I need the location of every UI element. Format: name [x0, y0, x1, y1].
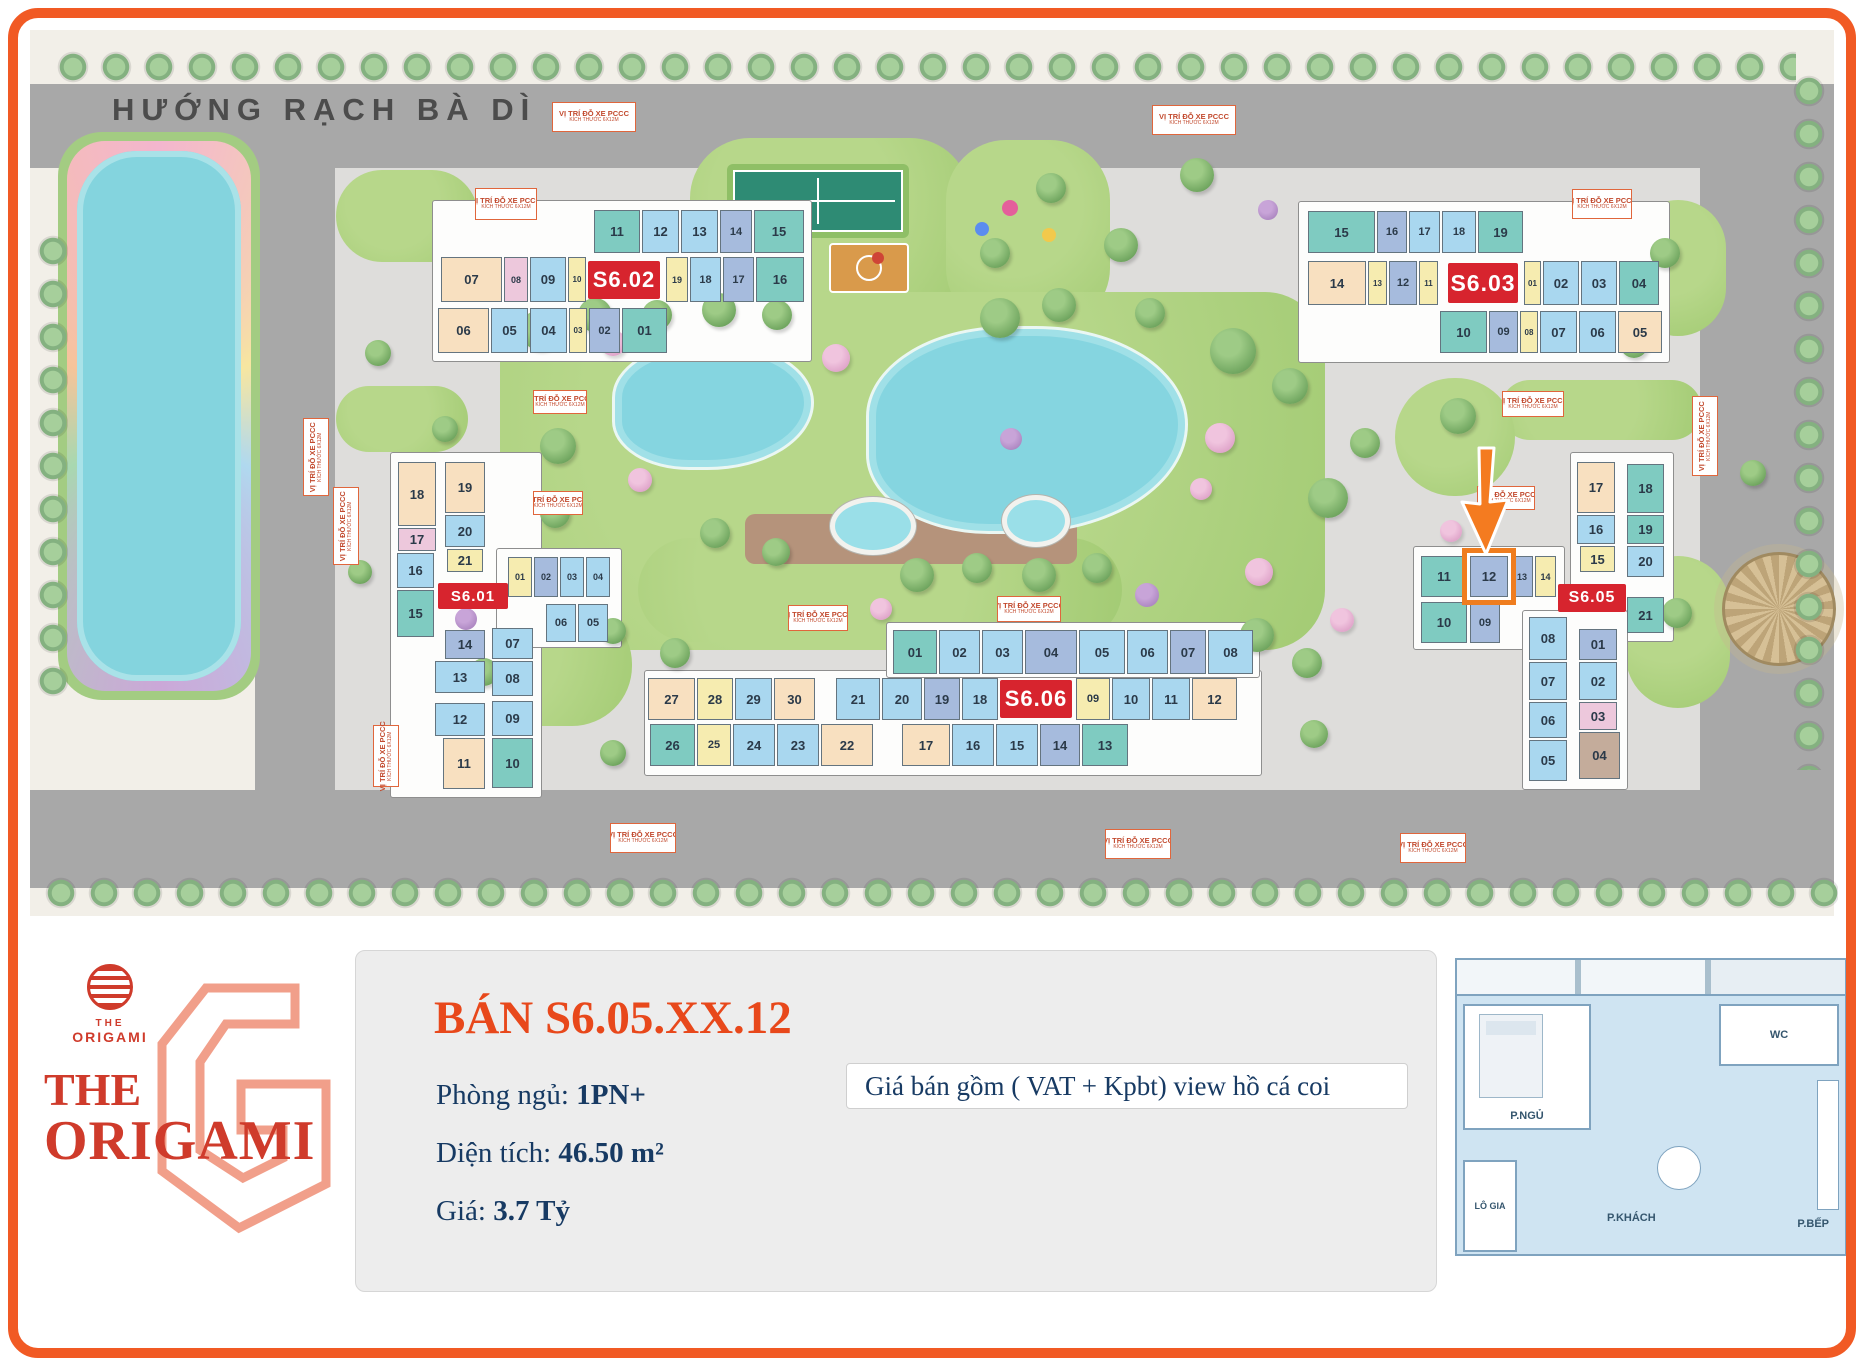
bed-icon: [1479, 1014, 1543, 1098]
unit-S6.06-08[interactable]: 08: [1208, 630, 1253, 674]
unit-S6.02-12[interactable]: 12: [642, 210, 679, 253]
field-bedrooms-label: Phòng ngủ:: [436, 1079, 576, 1111]
tree-icon: [1180, 158, 1214, 192]
pccc-marker: VỊ TRÍ ĐỖ XE PCCCKÍCH THƯỚC 6X12M: [1105, 829, 1171, 859]
unit-S6.06-03[interactable]: 03: [982, 630, 1023, 674]
tree-icon: [1022, 558, 1056, 592]
pccc-marker: VỊ TRÍ ĐỖ XE PCCCKÍCH THƯỚC 6X12M: [533, 390, 587, 414]
tree-icon: [1740, 460, 1766, 486]
unit-S6.02-17[interactable]: 17: [723, 257, 754, 302]
logo-big-origami: ORIGAMI: [44, 1113, 324, 1169]
unit-S6.03-16[interactable]: 16: [1377, 211, 1407, 253]
unit-S6.06-06[interactable]: 06: [1127, 630, 1168, 674]
unit-S6.02-13[interactable]: 13: [681, 210, 718, 253]
pink-tree-icon: [1245, 558, 1273, 586]
unit-S6.03-11[interactable]: 11: [1419, 261, 1438, 305]
tree-icon: [540, 428, 576, 464]
unit-S6.06-01[interactable]: 01: [893, 630, 937, 674]
unit-S6.01-01[interactable]: 01: [508, 557, 532, 597]
tree-row: [52, 48, 1796, 86]
unit-S6.01-09[interactable]: 09: [492, 701, 533, 736]
unit-S6.02-02[interactable]: 02: [589, 308, 620, 353]
unit-S6.05-03[interactable]: 03: [1579, 702, 1617, 730]
tree-icon: [1662, 598, 1692, 628]
logo-big-the: THE: [44, 1067, 324, 1113]
listing-fields: Phòng ngủ: 1PN+ Diện tích: 46.50 m² Giá:…: [436, 1079, 664, 1253]
unit-S6.03-08[interactable]: 08: [1520, 311, 1538, 353]
unit-S6.06-10[interactable]: 10: [1112, 678, 1150, 720]
kitchen-label: P.BẾP: [1797, 1218, 1829, 1230]
tree-icon: [900, 558, 934, 592]
pccc-marker: VỊ TRÍ ĐỖ XE PCCCKÍCH THƯỚC 6X12M: [552, 102, 636, 132]
field-bedrooms: Phòng ngủ: 1PN+: [436, 1079, 664, 1112]
unit-S6.03-06[interactable]: 06: [1579, 311, 1616, 353]
lake-water: [77, 151, 241, 681]
unit-S6.02-09[interactable]: 09: [530, 257, 566, 302]
unit-S6.02-18[interactable]: 18: [690, 257, 721, 302]
unit-S6.05-13[interactable]: 13: [1511, 556, 1533, 597]
unit-S6.03-12[interactable]: 12: [1389, 261, 1417, 305]
lake-park: [58, 132, 260, 700]
listing-note: Giá bán gồm ( VAT + Kpbt) view hồ cá coi: [846, 1063, 1408, 1109]
listing-card: BÁN S6.05.XX.12 Phòng ngủ: 1PN+ Diện tíc…: [355, 950, 1437, 1292]
unit-S6.06-04[interactable]: 04: [1025, 630, 1077, 674]
dining-table-icon: [1657, 1146, 1701, 1190]
unit-S6.05-10[interactable]: 10: [1421, 602, 1467, 643]
purple-tree-icon: [1000, 428, 1022, 450]
unit-S6.06-09[interactable]: 09: [1076, 678, 1110, 720]
pink-tree-icon: [628, 468, 652, 492]
building-label-S6.05: S6.05: [1558, 584, 1626, 612]
tree-icon: [600, 740, 626, 766]
tree-icon: [980, 298, 1020, 338]
unit-S6.06-25[interactable]: 25: [697, 724, 731, 766]
unit-S6.05-09[interactable]: 09: [1470, 602, 1500, 643]
unit-S6.01-13[interactable]: 13: [435, 661, 485, 693]
unit-S6.05-17[interactable]: 17: [1577, 462, 1615, 513]
unit-S6.03-05[interactable]: 05: [1618, 311, 1662, 353]
unit-S6.03-09[interactable]: 09: [1489, 311, 1518, 353]
unit-S6.05-04[interactable]: 04: [1579, 732, 1620, 779]
unit-S6.05-08[interactable]: 08: [1529, 617, 1567, 660]
floorplan-hall: [1457, 960, 1845, 996]
floorplan-wc: WC: [1719, 1004, 1839, 1066]
site-plan-map: HƯỚNG RẠCH BÀ DÌ 18171615192021010203040…: [0, 0, 1864, 918]
unit-S6.03-03[interactable]: 03: [1581, 261, 1617, 305]
unit-S6.02-08[interactable]: 08: [504, 257, 528, 302]
unit-S6.06-14[interactable]: 14: [1040, 724, 1080, 766]
unit-S6.06-12[interactable]: 12: [1192, 678, 1237, 720]
field-area-label: Diện tích:: [436, 1137, 558, 1169]
living-label: P.KHÁCH: [1607, 1212, 1656, 1224]
unit-S6.02-06[interactable]: 06: [438, 308, 489, 353]
tree-icon: [762, 300, 792, 330]
unit-S6.06-15[interactable]: 15: [996, 724, 1038, 766]
tree-icon: [1135, 298, 1165, 328]
pccc-marker: VỊ TRÍ ĐỖ XE PCCCKÍCH THƯỚC 6X12M: [1152, 105, 1236, 135]
unit-S6.03-04[interactable]: 04: [1619, 261, 1659, 305]
pink-tree-icon: [1330, 608, 1354, 632]
balcony-label: LÔ GIA: [1463, 1160, 1517, 1252]
unit-S6.03-07[interactable]: 07: [1540, 311, 1577, 353]
tree-column: [36, 230, 68, 700]
playground-equipment-icon: [975, 222, 989, 236]
tree-icon: [1300, 720, 1328, 748]
unit-S6.03-19[interactable]: 19: [1478, 211, 1523, 253]
pccc-marker: VỊ TRÍ ĐỖ XE PCCCKÍCH THƯỚC 6X12M: [997, 596, 1061, 622]
unit-S6.06-19[interactable]: 19: [924, 678, 960, 720]
floorplan-thumbnail[interactable]: P.NGỦ WC LÔ GIA P.KHÁCH P.BẾP: [1455, 958, 1847, 1256]
unit-S6.02-15[interactable]: 15: [754, 210, 804, 253]
unit-S6.01-20[interactable]: 20: [445, 515, 485, 547]
playground-equipment-icon: [1042, 228, 1056, 242]
basketball-court: [829, 243, 909, 293]
tree-icon: [1210, 328, 1256, 374]
unit-S6.05-16[interactable]: 16: [1577, 515, 1615, 544]
unit-S6.06-22[interactable]: 22: [821, 724, 873, 766]
pccc-marker: VỊ TRÍ ĐỖ XE PCCCKÍCH THƯỚC 6X12M: [333, 487, 359, 565]
pccc-marker: VỊ TRÍ ĐỖ XE PCCCKÍCH THƯỚC 6X12M: [788, 605, 848, 631]
playground-equipment-icon: [1002, 200, 1018, 216]
purple-tree-icon: [1135, 583, 1159, 607]
unit-S6.01-21[interactable]: 21: [447, 549, 483, 572]
tree-icon: [1292, 648, 1322, 678]
pccc-marker: VỊ TRÍ ĐỖ XE PCCCKÍCH THƯỚC 6X12M: [1502, 391, 1564, 417]
unit-S6.01-06[interactable]: 06: [546, 604, 576, 642]
purple-tree-icon: [455, 608, 477, 630]
tree-icon: [762, 538, 790, 566]
building-label-S6.02: S6.02: [588, 261, 660, 299]
pccc-marker: VỊ TRÍ ĐỖ XE PCCCKÍCH THƯỚC 6X12M: [533, 491, 583, 515]
unit-S6.05-01[interactable]: 01: [1579, 629, 1617, 660]
unit-S6.05-14[interactable]: 14: [1535, 556, 1556, 597]
unit-S6.05-06[interactable]: 06: [1529, 702, 1567, 738]
pccc-marker: VỊ TRÍ ĐỖ XE PCCCKÍCH THƯỚC 6X12M: [1400, 833, 1466, 863]
unit-S6.03-18[interactable]: 18: [1442, 211, 1476, 253]
unit-S6.05-21[interactable]: 21: [1627, 597, 1664, 633]
unit-S6.06-16[interactable]: 16: [952, 724, 994, 766]
unit-S6.02-14[interactable]: 14: [720, 210, 752, 253]
unit-S6.05-12[interactable]: 12: [1470, 556, 1508, 597]
purple-tree-icon: [1258, 200, 1278, 220]
tree-icon: [700, 518, 730, 548]
tree-icon: [1350, 428, 1380, 458]
pccc-marker: VỊ TRÍ ĐỖ XE PCCCKÍCH THƯỚC 6X12M: [610, 823, 676, 853]
unit-S6.01-12[interactable]: 12: [435, 703, 485, 736]
round-pool: [1002, 495, 1070, 547]
tree-row: [40, 874, 1838, 914]
field-area: Diện tích: 46.50 m²: [436, 1137, 664, 1170]
unit-S6.05-18[interactable]: 18: [1627, 464, 1664, 513]
unit-S6.06-13[interactable]: 13: [1082, 724, 1128, 766]
unit-S6.01-05[interactable]: 05: [578, 604, 608, 642]
tree-icon: [1104, 228, 1138, 262]
road-direction-label: HƯỚNG RẠCH BÀ DÌ: [112, 92, 536, 128]
origami-logo-icon: [87, 964, 133, 1010]
unit-S6.01-04[interactable]: 04: [586, 557, 610, 597]
unit-S6.01-02[interactable]: 02: [534, 557, 558, 597]
tree-icon: [365, 340, 391, 366]
unit-S6.06-20[interactable]: 20: [882, 678, 922, 720]
tree-column: [1792, 70, 1828, 770]
unit-S6.02-03[interactable]: 03: [569, 308, 587, 353]
tree-icon: [1440, 398, 1476, 434]
unit-S6.01-07[interactable]: 07: [492, 628, 533, 659]
unit-S6.06-23[interactable]: 23: [777, 724, 819, 766]
wc-label: WC: [1770, 1029, 1788, 1041]
unit-S6.05-05[interactable]: 05: [1529, 740, 1567, 781]
unit-S6.05-07[interactable]: 07: [1529, 662, 1567, 700]
pink-tree-icon: [870, 598, 892, 620]
pccc-marker: VỊ TRÍ ĐỖ XE PCCCKÍCH THƯỚC 6X12M: [373, 725, 399, 787]
unit-S6.01-18[interactable]: 18: [398, 462, 436, 526]
unit-S6.06-27[interactable]: 27: [648, 678, 695, 720]
pink-tree-icon: [1205, 423, 1235, 453]
unit-S6.01-15[interactable]: 15: [397, 590, 434, 637]
unit-S6.06-07[interactable]: 07: [1170, 630, 1206, 674]
kitchen-counter-icon: [1817, 1080, 1839, 1210]
tree-icon: [432, 416, 458, 442]
pccc-marker: VỊ TRÍ ĐỖ XE PCCCKÍCH THƯỚC 6X12M: [475, 188, 537, 220]
tree-icon: [1036, 173, 1066, 203]
unit-S6.03-14[interactable]: 14: [1308, 261, 1366, 305]
unit-S6.02-11[interactable]: 11: [594, 210, 640, 253]
unit-S6.01-14[interactable]: 14: [445, 630, 485, 659]
unit-S6.03-15[interactable]: 15: [1308, 211, 1375, 253]
unit-S6.01-10[interactable]: 10: [492, 738, 533, 788]
logo-small-origami: ORIGAMI: [44, 1029, 176, 1045]
field-area-value: 46.50 m²: [558, 1137, 663, 1169]
unit-S6.01-08[interactable]: 08: [492, 661, 533, 696]
tree-icon: [1272, 368, 1308, 404]
tree-icon: [660, 638, 690, 668]
unit-S6.06-26[interactable]: 26: [650, 724, 695, 766]
field-price-label: Giá:: [436, 1195, 493, 1227]
pink-tree-icon: [822, 344, 850, 372]
field-bedrooms-value: 1PN+: [576, 1079, 646, 1111]
tree-icon: [1082, 553, 1112, 583]
unit-S6.05-19[interactable]: 19: [1627, 515, 1664, 544]
unit-S6.03-01[interactable]: 01: [1524, 261, 1541, 305]
highlight-arrow-icon: [1456, 446, 1514, 558]
pccc-marker: VỊ TRÍ ĐỖ XE PCCCKÍCH THƯỚC 6X12M: [303, 418, 329, 496]
unit-S6.01-17[interactable]: 17: [398, 528, 436, 551]
listing-panel: THE ORIGAMI THE ORIGAMI BÁN S6.05.XX.12 …: [0, 918, 1864, 1366]
unit-S6.05-11[interactable]: 11: [1421, 556, 1467, 597]
brand-logo: THE ORIGAMI THE ORIGAMI: [44, 964, 324, 1294]
unit-S6.01-11[interactable]: 11: [443, 738, 485, 789]
unit-S6.06-17[interactable]: 17: [902, 724, 950, 766]
unit-S6.02-04[interactable]: 04: [530, 308, 567, 353]
unit-S6.03-02[interactable]: 02: [1543, 261, 1579, 305]
round-pool: [830, 497, 916, 555]
logo-small-the: THE: [44, 1018, 176, 1029]
unit-S6.02-01[interactable]: 01: [622, 308, 667, 353]
pink-tree-icon: [1190, 478, 1212, 500]
unit-S6.06-30[interactable]: 30: [774, 678, 815, 720]
unit-S6.01-19[interactable]: 19: [445, 462, 485, 513]
unit-S6.05-20[interactable]: 20: [1627, 546, 1664, 577]
building-label-S6.03: S6.03: [1448, 263, 1518, 303]
unit-S6.06-05[interactable]: 05: [1079, 630, 1125, 674]
field-price-value: 3.7 Tỷ: [493, 1195, 570, 1227]
unit-S6.05-02[interactable]: 02: [1579, 662, 1617, 700]
unit-S6.02-19[interactable]: 19: [666, 257, 688, 302]
unit-S6.02-16[interactable]: 16: [756, 257, 804, 302]
lake-color-ring: [67, 141, 251, 691]
unit-S6.01-03[interactable]: 03: [560, 557, 584, 597]
bedroom-label: P.NGỦ: [1465, 1110, 1589, 1122]
tree-icon: [980, 238, 1010, 268]
tree-icon: [1042, 288, 1076, 322]
unit-S6.06-21[interactable]: 21: [836, 678, 880, 720]
unit-S6.05-15[interactable]: 15: [1580, 546, 1615, 572]
unit-S6.06-24[interactable]: 24: [733, 724, 775, 766]
unit-S6.02-10[interactable]: 10: [568, 257, 586, 302]
playground-equipment-icon: [872, 252, 884, 264]
floorplan-bedroom: P.NGỦ: [1463, 1004, 1591, 1130]
pccc-marker: VỊ TRÍ ĐỖ XE PCCCKÍCH THƯỚC 6X12M: [1692, 396, 1718, 476]
building-label-S6.01: S6.01: [438, 583, 508, 609]
listing-title: BÁN S6.05.XX.12: [434, 991, 792, 1045]
unit-S6.06-11[interactable]: 11: [1152, 678, 1190, 720]
unit-S6.06-18[interactable]: 18: [962, 678, 998, 720]
tree-icon: [962, 553, 992, 583]
building-label-S6.06: S6.06: [1000, 680, 1072, 718]
unit-S6.06-29[interactable]: 29: [735, 678, 772, 720]
unit-S6.06-02[interactable]: 02: [939, 630, 980, 674]
unit-S6.02-07[interactable]: 07: [441, 257, 502, 302]
field-price: Giá: 3.7 Tỷ: [436, 1195, 664, 1228]
pccc-marker: VỊ TRÍ ĐỖ XE PCCCKÍCH THƯỚC 6X12M: [1572, 189, 1632, 219]
tree-icon: [1308, 478, 1348, 518]
unit-S6.02-05[interactable]: 05: [491, 308, 528, 353]
unit-S6.03-10[interactable]: 10: [1440, 311, 1487, 353]
unit-S6.01-16[interactable]: 16: [397, 553, 434, 588]
unit-S6.03-13[interactable]: 13: [1368, 261, 1387, 305]
unit-S6.06-28[interactable]: 28: [697, 678, 733, 720]
unit-S6.03-17[interactable]: 17: [1409, 211, 1440, 253]
